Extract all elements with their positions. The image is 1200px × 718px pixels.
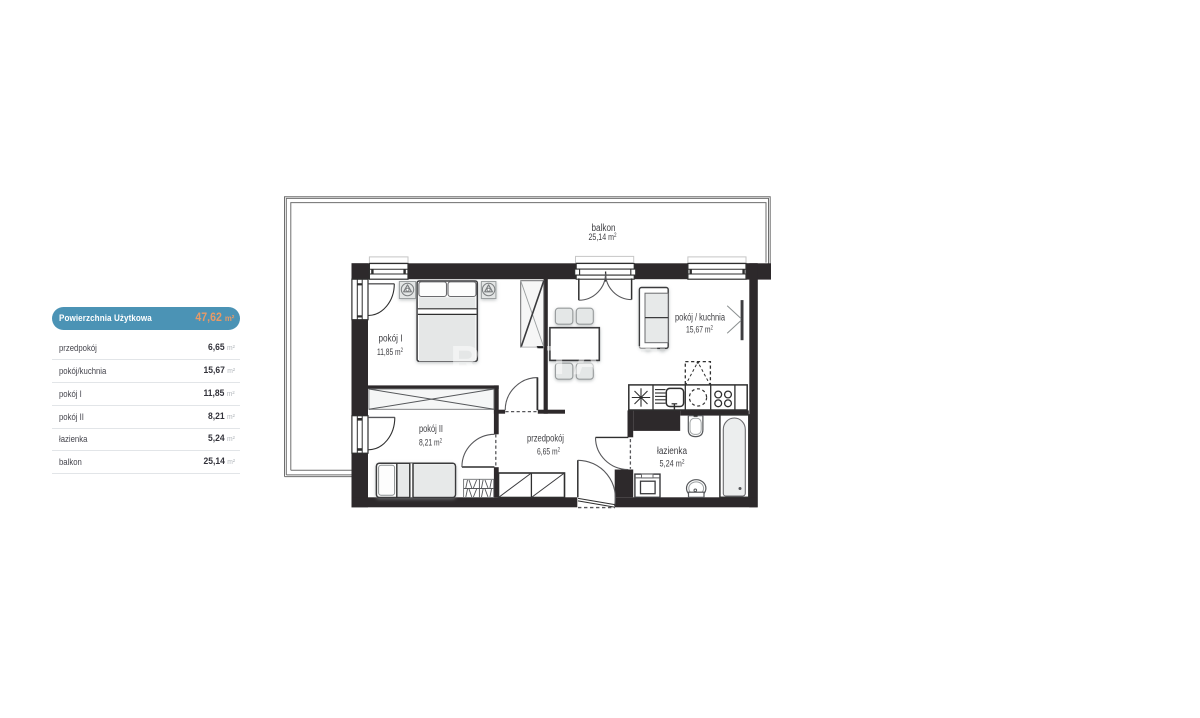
svg-text:15,67 m2: 15,67 m2 [686,324,713,334]
svg-text:6,65 m2: 6,65 m2 [537,447,560,457]
svg-text:łazienka: łazienka [657,446,687,457]
svg-text:pokój / kuchnia: pokój / kuchnia [675,313,725,324]
svg-text:11,85 m2: 11,85 m2 [377,347,403,357]
svg-text:5,24 m2: 5,24 m2 [660,459,686,469]
svg-text:8,21 m2: 8,21 m2 [419,437,442,447]
svg-text:25,14 m2: 25,14 m2 [589,232,617,242]
svg-text:pokój II: pokój II [419,424,443,435]
svg-text:przedpokój: przedpokój [527,433,564,444]
svg-text:pokój I: pokój I [379,334,403,345]
svg-text:RESTATE: RESTATE [450,337,663,383]
